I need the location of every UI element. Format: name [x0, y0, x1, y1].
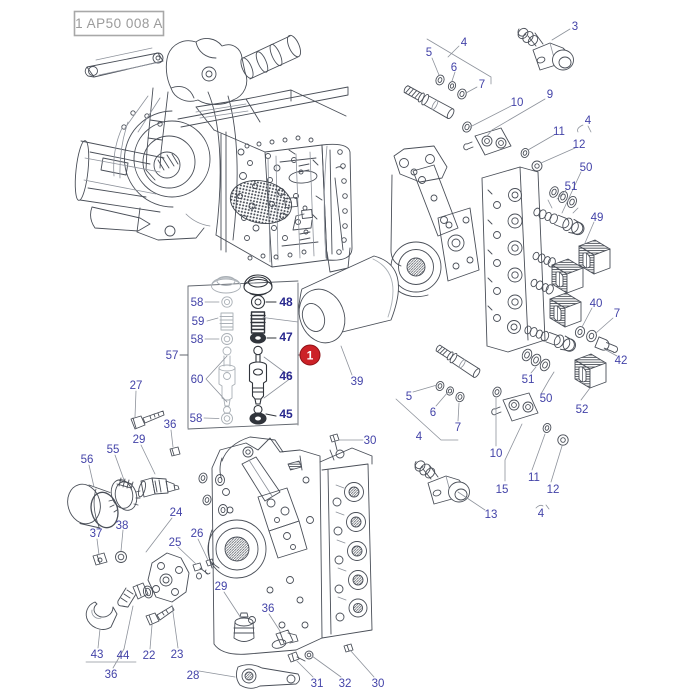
svg-text:45: 45 [279, 407, 293, 421]
svg-text:58: 58 [191, 334, 204, 346]
svg-text:36: 36 [105, 669, 118, 681]
svg-text:38: 38 [116, 520, 129, 532]
svg-text:56: 56 [81, 454, 94, 466]
svg-text:1: 1 [307, 349, 314, 363]
svg-text:4: 4 [585, 115, 592, 127]
svg-text:1 AP50 008 A: 1 AP50 008 A [75, 16, 163, 31]
svg-text:52: 52 [576, 404, 589, 416]
svg-text:24: 24 [170, 507, 183, 519]
svg-text:31: 31 [311, 678, 324, 690]
svg-text:9: 9 [547, 89, 553, 101]
svg-text:37: 37 [90, 528, 103, 540]
svg-text:47: 47 [279, 330, 293, 344]
svg-text:57: 57 [166, 350, 179, 362]
svg-text:58: 58 [190, 413, 203, 425]
svg-text:51: 51 [565, 181, 578, 193]
svg-text:11: 11 [553, 126, 565, 138]
svg-text:10: 10 [490, 448, 503, 460]
svg-text:11: 11 [528, 472, 540, 484]
svg-text:6: 6 [430, 407, 436, 419]
svg-text:22: 22 [143, 650, 156, 662]
svg-text:29: 29 [133, 434, 146, 446]
svg-text:32: 32 [339, 678, 352, 690]
svg-text:4: 4 [461, 37, 468, 49]
svg-text:30: 30 [372, 678, 385, 690]
svg-text:4: 4 [538, 508, 545, 520]
svg-text:6: 6 [451, 62, 457, 74]
svg-text:43: 43 [91, 649, 104, 661]
svg-text:60: 60 [191, 374, 204, 386]
svg-text:44: 44 [117, 650, 130, 662]
svg-text:55: 55 [107, 444, 120, 456]
svg-text:46: 46 [279, 369, 293, 383]
svg-text:36: 36 [262, 603, 275, 615]
svg-text:40: 40 [590, 298, 603, 310]
svg-text:5: 5 [426, 47, 432, 59]
svg-text:10: 10 [511, 97, 524, 109]
svg-text:39: 39 [351, 376, 364, 388]
svg-text:50: 50 [580, 162, 593, 174]
svg-text:29: 29 [215, 581, 228, 593]
svg-text:25: 25 [169, 537, 182, 549]
svg-text:13: 13 [485, 509, 498, 521]
svg-text:51: 51 [522, 374, 535, 386]
svg-text:48: 48 [279, 295, 293, 309]
svg-text:15: 15 [496, 484, 509, 496]
svg-text:3: 3 [572, 21, 578, 33]
svg-text:26: 26 [191, 528, 204, 540]
svg-text:23: 23 [171, 649, 184, 661]
svg-text:7: 7 [614, 308, 620, 320]
svg-text:5: 5 [406, 391, 412, 403]
svg-text:12: 12 [573, 139, 586, 151]
svg-text:42: 42 [615, 355, 628, 367]
svg-text:4: 4 [416, 431, 423, 443]
svg-text:28: 28 [187, 670, 200, 682]
svg-text:7: 7 [455, 422, 461, 434]
svg-text:59: 59 [192, 316, 205, 328]
svg-text:50: 50 [540, 393, 553, 405]
svg-text:12: 12 [547, 484, 560, 496]
svg-text:36: 36 [164, 419, 177, 431]
svg-text:27: 27 [130, 380, 143, 392]
svg-text:7: 7 [479, 79, 485, 91]
svg-text:49: 49 [591, 212, 604, 224]
svg-text:30: 30 [364, 435, 377, 447]
svg-text:58: 58 [191, 297, 204, 309]
